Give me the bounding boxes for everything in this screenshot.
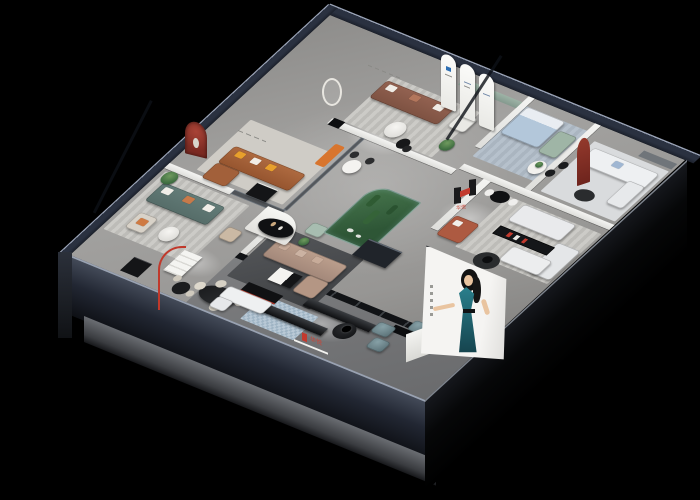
panel-caption [445, 74, 452, 78]
round-wall-mirror [322, 78, 342, 106]
model-arm-left [433, 303, 455, 311]
brand-name-text-small: 华悦 [456, 204, 466, 211]
arched-panel [441, 52, 456, 112]
logo-wall-emblem: 华悦 [454, 176, 484, 214]
brand-logo-mark [302, 332, 307, 342]
red-arc-floor-lamp [158, 246, 186, 310]
model-belt [463, 309, 475, 313]
panel-caption [464, 81, 471, 85]
panel-caption [483, 93, 490, 97]
h-logo-right-bar [469, 179, 476, 196]
panel-blue-logo [446, 66, 451, 72]
poster-tagline-vertical [430, 285, 433, 319]
model-arm-right [481, 299, 491, 316]
model-hair-flow [473, 277, 481, 303]
panel-caption [464, 85, 470, 88]
model-dress [447, 287, 487, 355]
red-arch-right [577, 136, 590, 186]
showroom-isometric-render: 华悦 华悦 [0, 0, 700, 500]
model-face [464, 275, 473, 286]
west-corner-face [58, 252, 72, 338]
niche-figurine [193, 137, 199, 148]
